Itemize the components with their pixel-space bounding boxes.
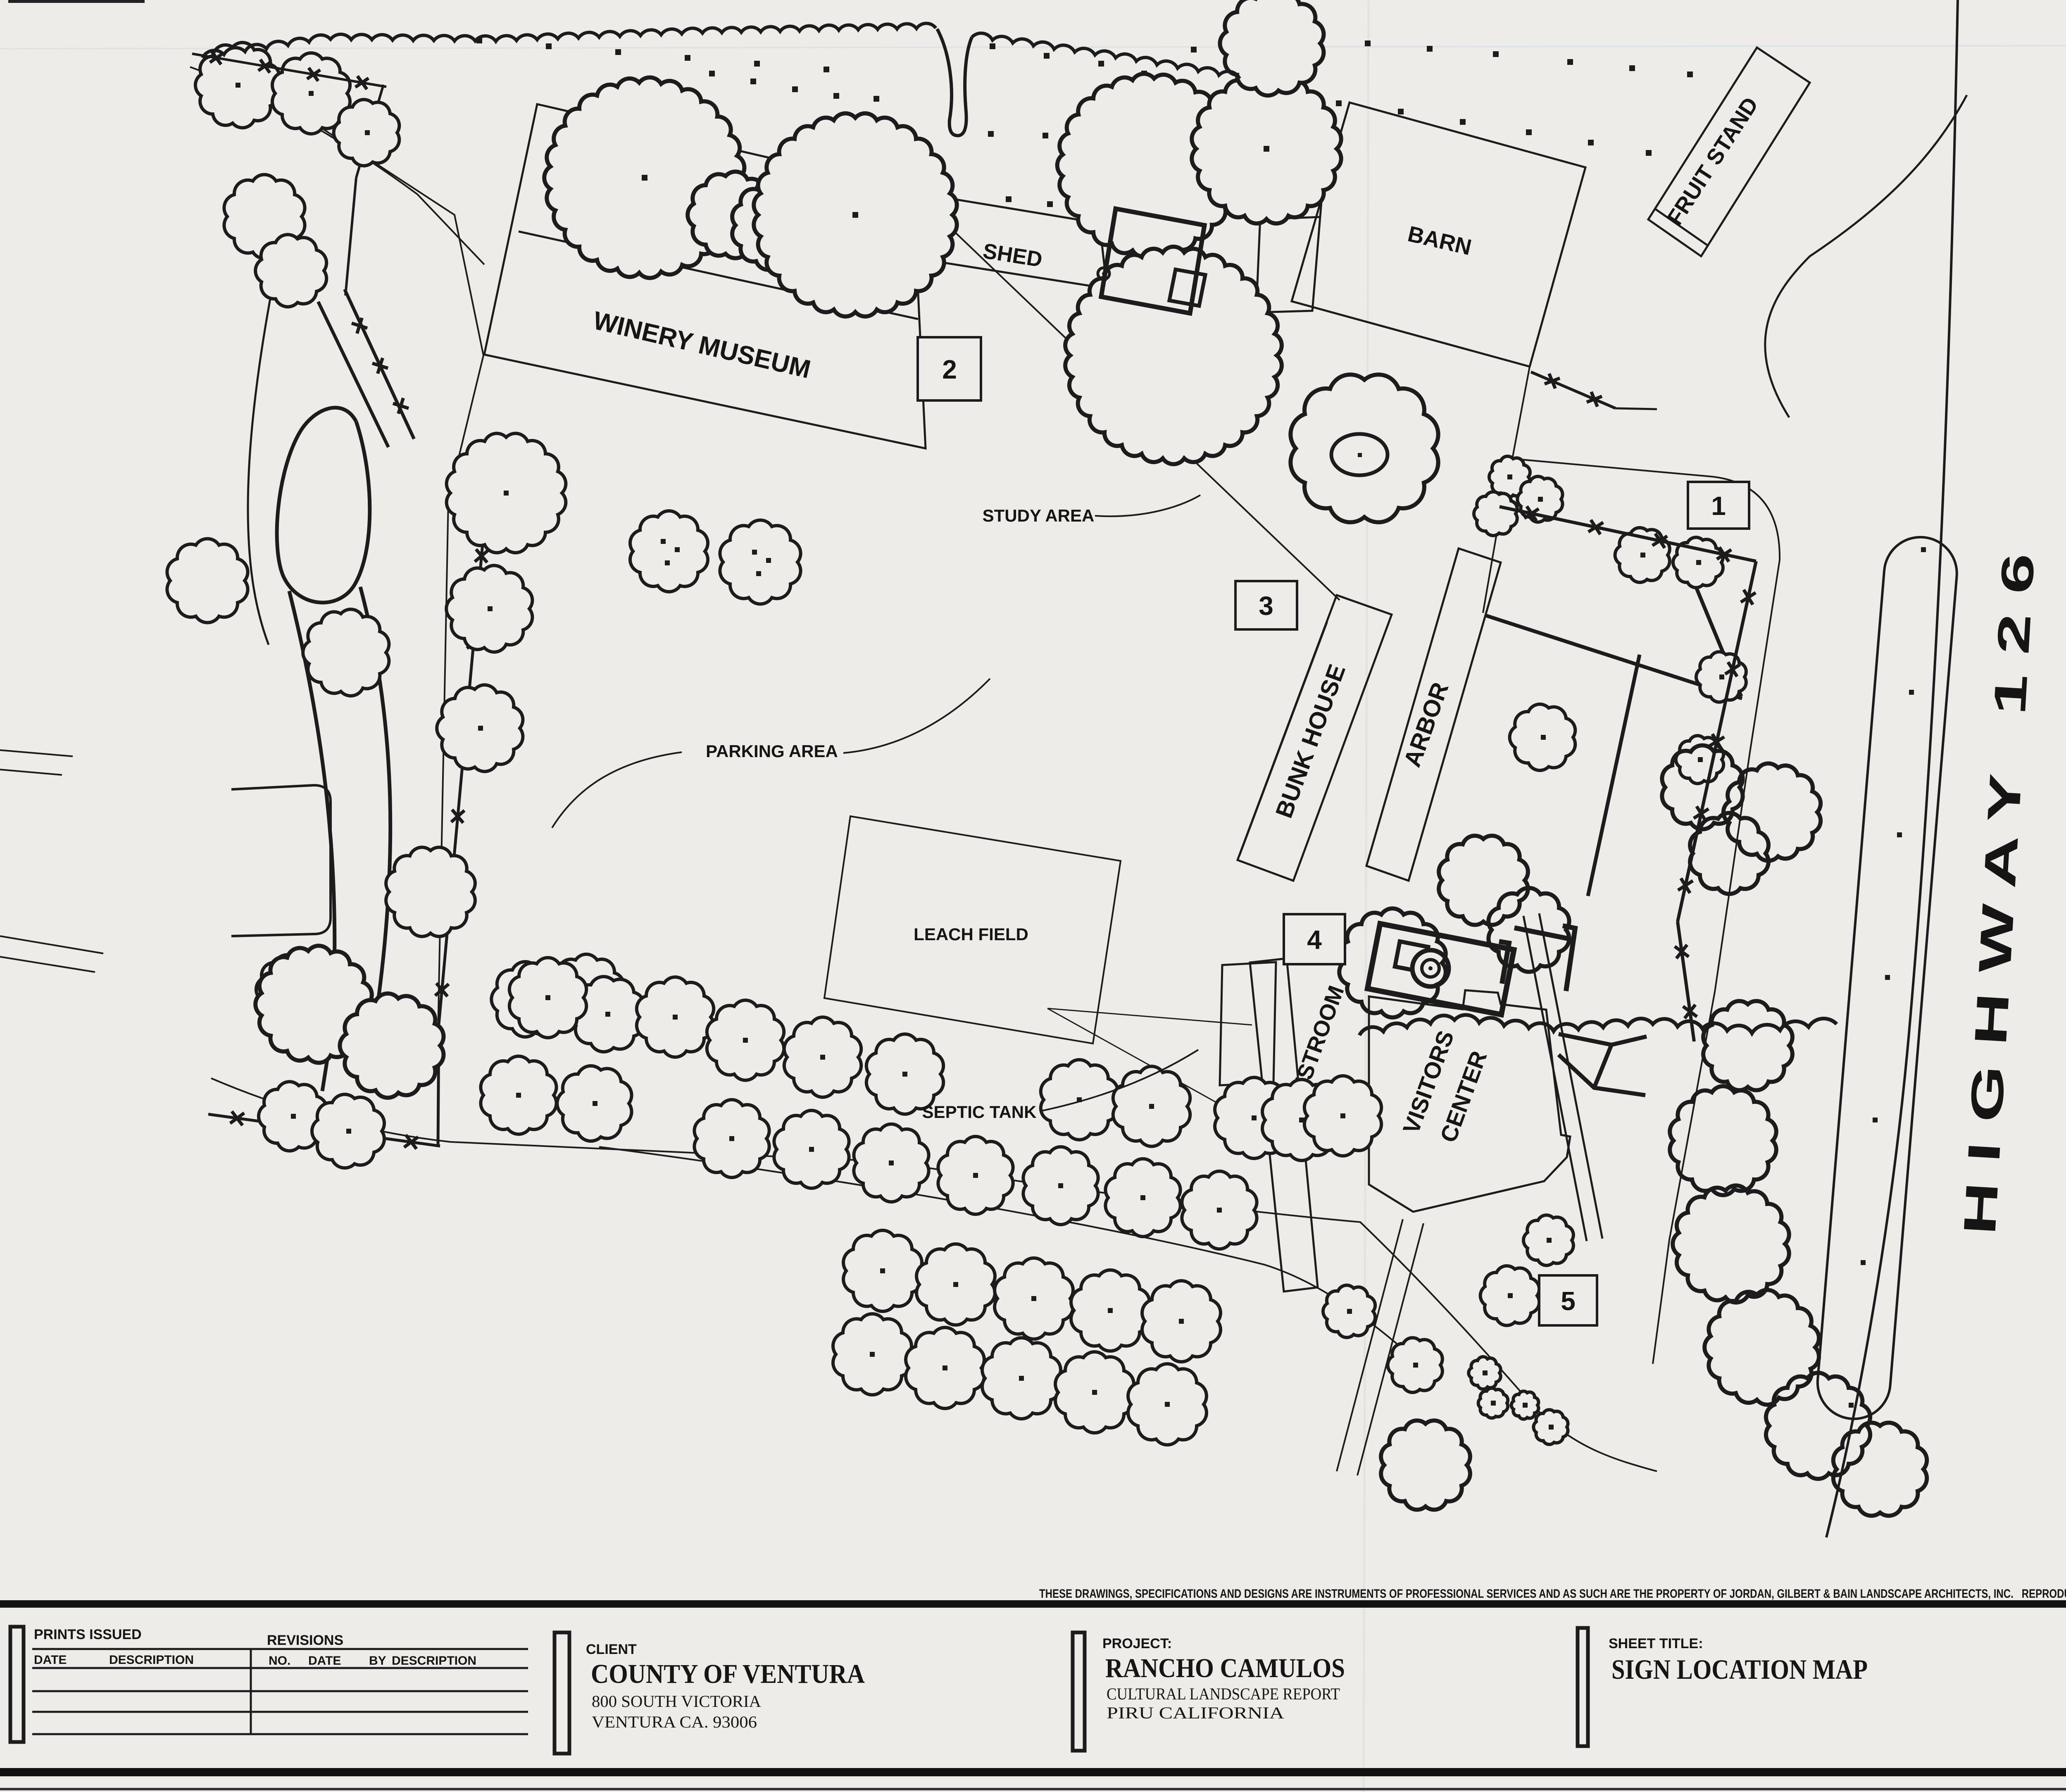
svg-text:3: 3 [1259, 591, 1273, 621]
svg-text:RANCHO CAMULOS: RANCHO CAMULOS [1105, 1653, 1345, 1683]
svg-text:VENTURA CA. 93006: VENTURA CA. 93006 [592, 1713, 757, 1731]
svg-text:SHEET TITLE:: SHEET TITLE: [1609, 1636, 1703, 1651]
svg-text:LEACH FIELD: LEACH FIELD [914, 925, 1028, 944]
svg-text:NO.: NO. [269, 1654, 290, 1668]
svg-text:4: 4 [1307, 925, 1322, 955]
svg-text:5: 5 [1561, 1286, 1576, 1316]
svg-text:DATE: DATE [308, 1654, 341, 1668]
svg-text:PROJECT:: PROJECT: [1102, 1636, 1172, 1651]
svg-text:DATE: DATE [34, 1653, 67, 1667]
svg-text:CLIENT: CLIENT [586, 1642, 637, 1657]
svg-text:SIGN LOCATION MAP: SIGN LOCATION MAP [1611, 1654, 1868, 1685]
svg-text:CULTURAL LANDSCAPE REPORT: CULTURAL LANDSCAPE REPORT [1107, 1685, 1340, 1703]
svg-text:SEPTIC TANK: SEPTIC TANK [922, 1102, 1037, 1122]
svg-text:THESE DRAWINGS, SPECIFICATIONS: THESE DRAWINGS, SPECIFICATIONS AND DESIG… [1039, 1587, 2066, 1601]
svg-text:PRINTS ISSUED: PRINTS ISSUED [34, 1627, 142, 1642]
svg-text:COUNTY OF VENTURA: COUNTY OF VENTURA [591, 1659, 865, 1689]
svg-text:800 SOUTH VICTORIA: 800 SOUTH VICTORIA [592, 1692, 761, 1711]
svg-text:DESCRIPTION: DESCRIPTION [392, 1654, 476, 1668]
svg-text:2: 2 [942, 355, 957, 384]
svg-text:PIRU CALIFORNIA: PIRU CALIFORNIA [1107, 1704, 1284, 1722]
svg-text:REVISIONS: REVISIONS [267, 1632, 343, 1648]
svg-text:DESCRIPTION: DESCRIPTION [109, 1653, 194, 1667]
svg-text:PARKING AREA: PARKING AREA [706, 741, 838, 761]
svg-text:1: 1 [1711, 491, 1726, 521]
svg-text:BY: BY [369, 1654, 386, 1668]
svg-text:STUDY AREA: STUDY AREA [983, 506, 1095, 525]
